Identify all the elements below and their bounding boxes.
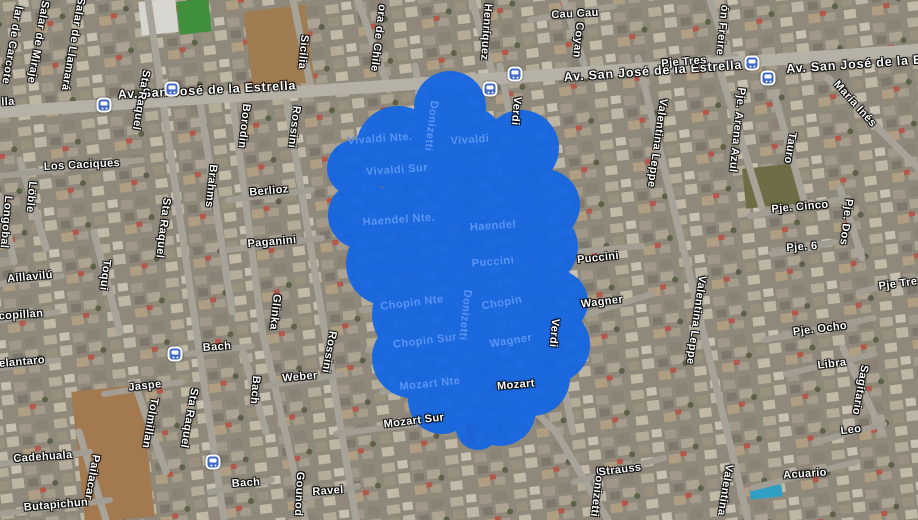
bus-glyph (516, 76, 518, 78)
bus-glyph (749, 65, 751, 67)
transit-stop-icon[interactable] (483, 82, 498, 97)
street-label: Leo (840, 423, 862, 437)
street-label: Gounod (292, 471, 306, 516)
street-label: Bach (231, 476, 260, 490)
transit-stop-icon[interactable] (206, 455, 221, 470)
bus-glyph (512, 70, 519, 74)
bus-glyph (765, 80, 767, 82)
bus-glyph (169, 91, 171, 93)
street-label: Bach (202, 340, 231, 354)
bus-glyph (172, 356, 174, 358)
street-label: Cau Cau (551, 7, 599, 21)
street-label: Ravel (312, 484, 344, 498)
bus-glyph (105, 107, 107, 109)
bus-glyph (101, 107, 103, 109)
bus-glyph (487, 85, 494, 89)
map-viewport[interactable]: Av. San José de la EstrellaAv. San José … (0, 0, 918, 520)
bus-glyph (487, 91, 489, 93)
bus-glyph (210, 464, 212, 466)
bus-glyph (169, 85, 176, 89)
street-label: Bach (248, 375, 262, 404)
bus-glyph (749, 59, 756, 63)
street-label: lla (1, 96, 15, 109)
bus-glyph (173, 91, 175, 93)
street-label: Pje. 6 (786, 240, 818, 254)
bus-glyph (176, 356, 178, 358)
bus-glyph (769, 80, 771, 82)
transit-stop-icon[interactable] (508, 67, 523, 82)
bus-glyph (172, 350, 179, 354)
transit-stop-icon[interactable] (97, 98, 112, 113)
street-label: Verdi (509, 96, 523, 126)
bus-glyph (210, 458, 217, 462)
bus-glyph (512, 76, 514, 78)
transit-stop-icon[interactable] (165, 82, 180, 97)
bus-glyph (101, 101, 108, 105)
bus-glyph (491, 91, 493, 93)
bus-glyph (214, 464, 216, 466)
bus-glyph (753, 65, 755, 67)
transit-stop-icon[interactable] (761, 71, 776, 86)
transit-stop-icon[interactable] (745, 56, 760, 71)
transit-stop-icon[interactable] (168, 347, 183, 362)
street-label: Verdi (547, 318, 561, 348)
bus-glyph (765, 74, 772, 78)
